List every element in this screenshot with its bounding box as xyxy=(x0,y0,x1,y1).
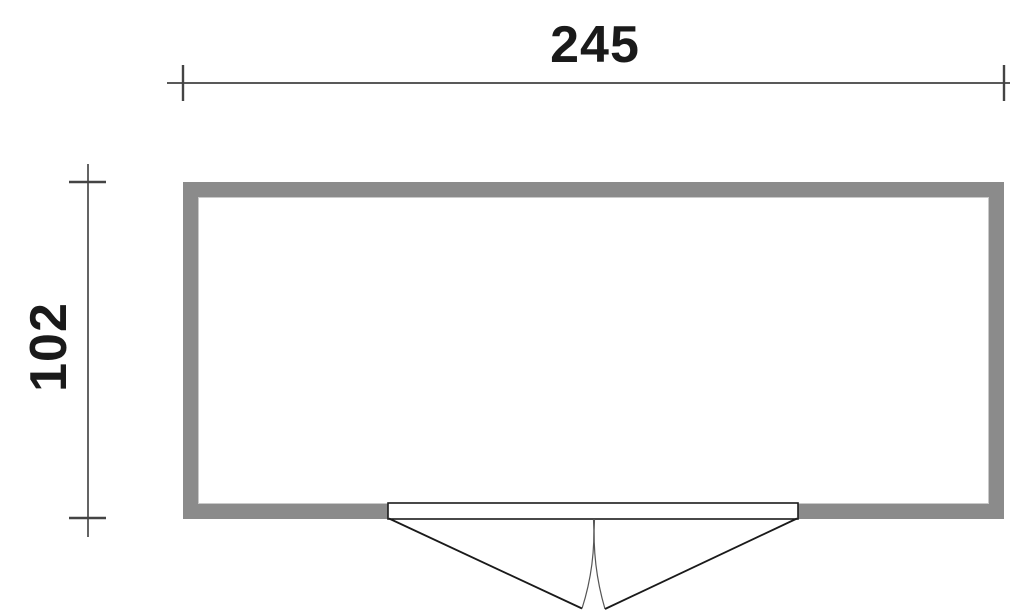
wall-bottom-right-segment xyxy=(798,504,1004,519)
width-dimension: 245 xyxy=(167,16,1010,101)
building-outline xyxy=(183,182,1004,519)
door-swing-arc-right xyxy=(594,519,605,609)
door-leaf-right xyxy=(605,519,797,610)
wall-right xyxy=(989,182,1004,519)
floor-plan-drawing: 245 102 xyxy=(0,0,1024,612)
wall-inner-edge-line xyxy=(199,198,989,504)
door-panel xyxy=(388,503,798,519)
height-dimension-label: 102 xyxy=(20,302,78,392)
door-leaf-left xyxy=(389,519,582,609)
floor-plan-svg: 245 102 xyxy=(0,0,1024,612)
height-dimension: 102 xyxy=(20,164,106,537)
double-door xyxy=(388,503,798,609)
wall-top xyxy=(183,182,1004,197)
door-swing-arc-left xyxy=(582,519,594,609)
wall-left xyxy=(183,182,198,519)
width-dimension-label: 245 xyxy=(550,16,640,74)
wall-bottom-left-segment xyxy=(183,504,388,519)
